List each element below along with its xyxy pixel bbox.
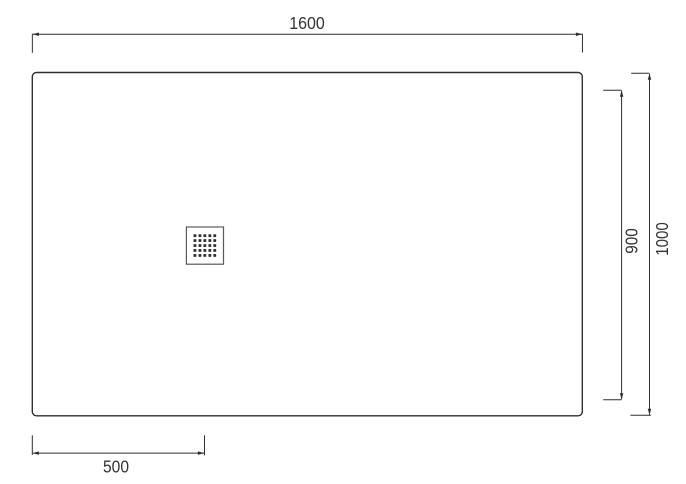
svg-text:900: 900 — [622, 228, 642, 254]
svg-text:1600: 1600 — [289, 13, 325, 33]
svg-text:1000: 1000 — [652, 222, 672, 256]
svg-text:500: 500 — [103, 457, 129, 477]
